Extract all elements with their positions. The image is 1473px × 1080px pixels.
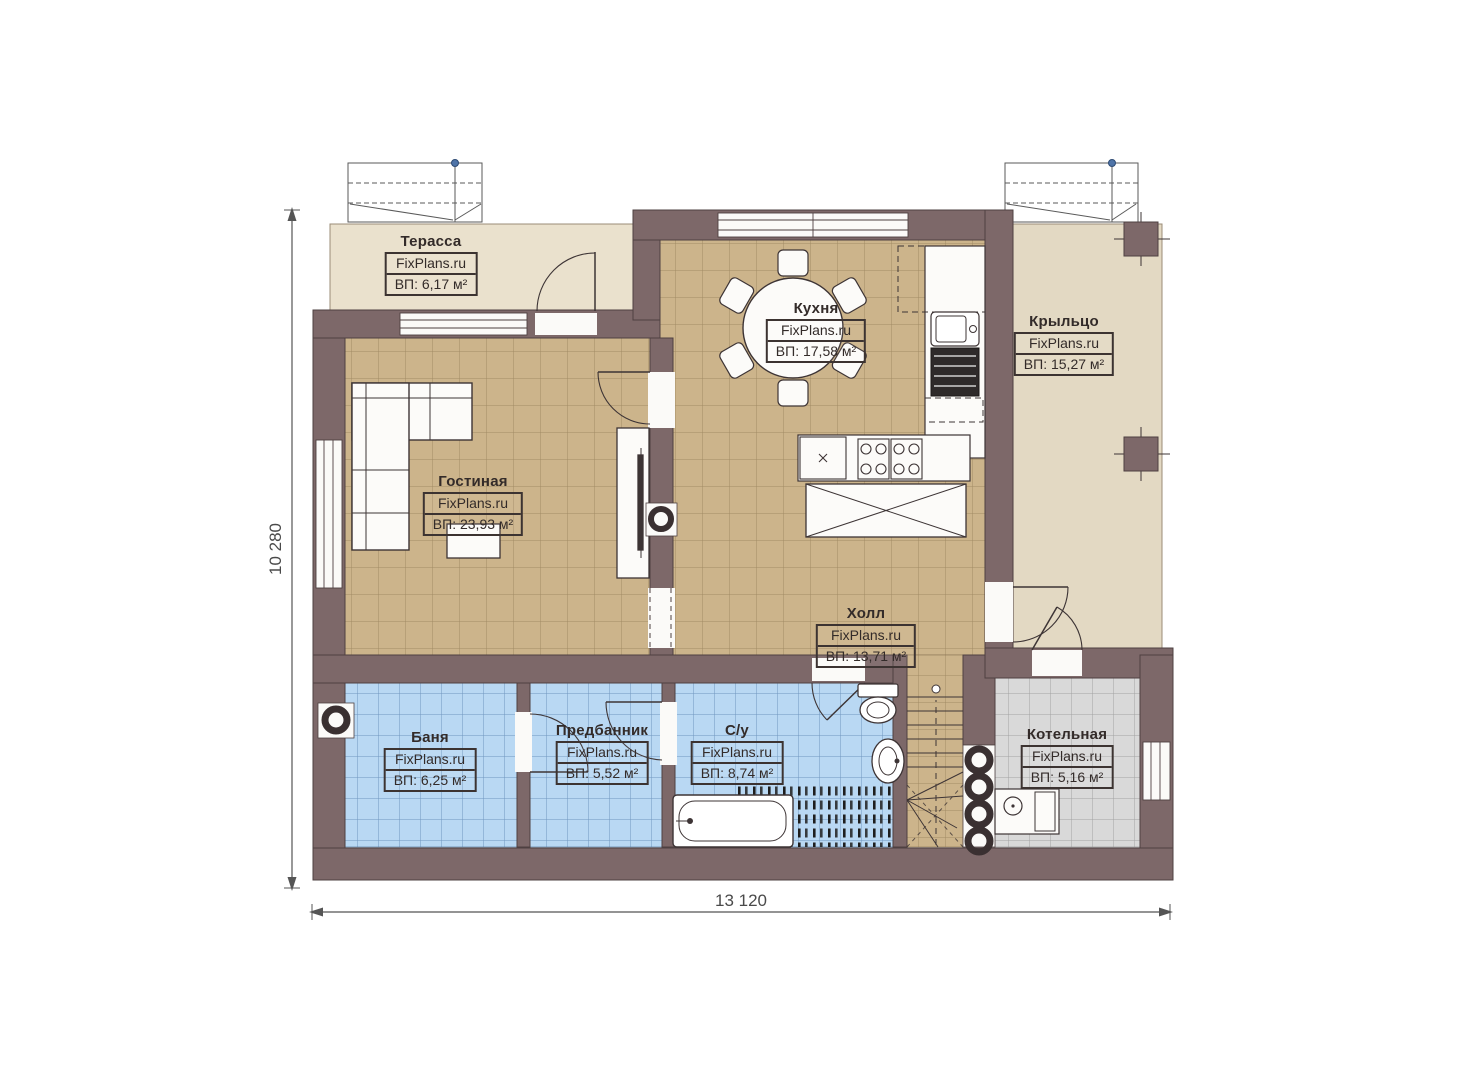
- room-label-predbannik: Предбанник FixPlans.ru ВП: 5,52 м²: [556, 722, 649, 785]
- room-name: Баня: [384, 729, 477, 746]
- stair-walkline-start: [932, 685, 940, 693]
- room-area: ВП: 6,25 м²: [386, 771, 475, 790]
- banya-vent: [318, 703, 354, 738]
- step-reference-dot: [1109, 160, 1116, 167]
- room-info-box: FixPlans.ru ВП: 17,58 м²: [766, 319, 866, 363]
- tv-stand: [617, 428, 649, 578]
- wall-bottom-exterior: [313, 848, 1173, 880]
- bathtub: [673, 795, 793, 847]
- room-label-boiler: Котельная FixPlans.ru ВП: 5,16 м²: [1021, 726, 1114, 789]
- window-boiler-right: [1143, 742, 1170, 800]
- room-area: ВП: 17,58 м²: [768, 342, 864, 361]
- room-name: Кухня: [766, 300, 866, 317]
- room-name: Крыльцо: [1014, 313, 1114, 330]
- dimension-left: 10 280: [266, 207, 300, 891]
- window-kitchen-top: [718, 213, 908, 237]
- dimension-bottom: 13 120: [309, 891, 1173, 920]
- opening-banya-pred: [515, 712, 532, 772]
- room-area: ВП: 5,16 м²: [1023, 768, 1112, 787]
- room-area: ВП: 5,52 м²: [558, 764, 647, 783]
- opening-terrace-door: [535, 313, 597, 335]
- room-label-kitchen: Кухня FixPlans.ru ВП: 17,58 м²: [766, 300, 866, 363]
- room-name: Котельная: [1021, 726, 1114, 743]
- brand-watermark: FixPlans.ru: [386, 750, 475, 771]
- room-area: ВП: 6,17 м²: [387, 275, 476, 294]
- stair-floor: [903, 655, 965, 847]
- room-info-box: FixPlans.ru ВП: 15,27 м²: [1014, 332, 1114, 376]
- dining-chair: [778, 250, 808, 276]
- step-reference-dot: [452, 160, 459, 167]
- room-info-box: FixPlans.ru ВП: 5,16 м²: [1021, 745, 1114, 789]
- brand-watermark: FixPlans.ru: [387, 254, 476, 275]
- room-name: Предбанник: [556, 722, 649, 739]
- room-area: ВП: 13,71 м²: [818, 647, 914, 666]
- opening-hall-porch: [985, 582, 1013, 642]
- dimension-horizontal-label: 13 120: [715, 891, 767, 910]
- deck-steps-left: [348, 160, 482, 223]
- washbasin: [872, 739, 904, 783]
- opening-living-kitchen: [648, 372, 675, 428]
- room-name: Холл: [816, 605, 916, 622]
- wall-left-exterior: [313, 310, 345, 880]
- brand-watermark: FixPlans.ru: [558, 743, 647, 764]
- room-label-terrace: Терасса FixPlans.ru ВП: 6,17 м²: [385, 233, 478, 296]
- room-name: С/у: [691, 722, 784, 739]
- dishwasher: [931, 348, 979, 396]
- floor-plan-drawing: 10 280 13 120: [0, 0, 1473, 1080]
- dimension-vertical-label: 10 280: [266, 523, 285, 575]
- room-info-box: FixPlans.ru ВП: 13,71 м²: [816, 624, 916, 668]
- kitchen-island: [806, 484, 966, 537]
- terrace-floor: [330, 224, 640, 312]
- window-living-top: [400, 313, 527, 335]
- room-label-porch: Крыльцо FixPlans.ru ВП: 15,27 м²: [1014, 313, 1114, 376]
- room-area: ВП: 15,27 м²: [1016, 355, 1112, 374]
- brand-watermark: FixPlans.ru: [818, 626, 914, 647]
- room-name: Терасса: [385, 233, 478, 250]
- boiler-equipment: [995, 789, 1059, 834]
- kitchen-sink: [931, 312, 979, 346]
- room-area: ВП: 8,74 м²: [693, 764, 782, 783]
- column-marker: [1124, 222, 1158, 256]
- column-marker: [1124, 437, 1158, 471]
- room-info-box: FixPlans.ru ВП: 23,93 м²: [423, 492, 523, 536]
- room-label-su: С/у FixPlans.ru ВП: 8,74 м²: [691, 722, 784, 785]
- brand-watermark: FixPlans.ru: [425, 494, 521, 515]
- brand-watermark: FixPlans.ru: [1023, 747, 1112, 768]
- brand-watermark: FixPlans.ru: [768, 321, 864, 342]
- dining-chair: [778, 380, 808, 406]
- room-label-banya: Баня FixPlans.ru ВП: 6,25 м²: [384, 729, 477, 792]
- toilet: [858, 684, 898, 723]
- room-area: ВП: 23,93 м²: [425, 515, 521, 534]
- deck-steps-right: [1005, 160, 1138, 223]
- window-living-left: [316, 440, 342, 588]
- room-info-box: FixPlans.ru ВП: 6,25 м²: [384, 748, 477, 792]
- brand-watermark: FixPlans.ru: [693, 743, 782, 764]
- opening-pred-wc: [660, 702, 677, 765]
- room-info-box: FixPlans.ru ВП: 5,52 м²: [556, 741, 649, 785]
- room-name: Гостиная: [423, 473, 523, 490]
- kitchen-counter-bottom: [798, 435, 970, 481]
- room-label-hall: Холл FixPlans.ru ВП: 13,71 м²: [816, 605, 916, 668]
- room-label-living: Гостиная FixPlans.ru ВП: 23,93 м²: [423, 473, 523, 536]
- floor-plan-canvas: 10 280 13 120 Терасса FixPlans.ru ВП: 6,…: [0, 0, 1473, 1080]
- room-info-box: FixPlans.ru ВП: 6,17 м²: [385, 252, 478, 296]
- opening-porch-boiler: [1032, 650, 1082, 676]
- brand-watermark: FixPlans.ru: [1016, 334, 1112, 355]
- room-info-box: FixPlans.ru ВП: 8,74 м²: [691, 741, 784, 785]
